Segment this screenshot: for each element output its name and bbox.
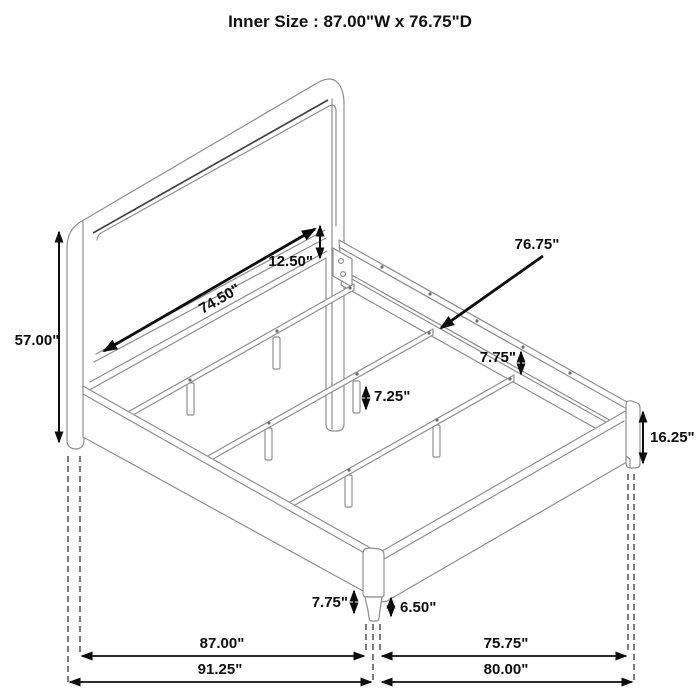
dim-label: 87.00" (200, 635, 245, 652)
side-rail-top-face-line (339, 247, 627, 409)
slat-screw-hole (347, 468, 350, 471)
front-structure (83, 386, 640, 621)
rail-screw-hole (521, 345, 524, 348)
center-support-leg (345, 475, 352, 507)
dim-label: 91.25" (198, 661, 243, 678)
dim-footboard-height: 16.25" (643, 412, 695, 463)
slat-screw-hole (188, 378, 191, 381)
slat-screw-hole (348, 286, 351, 289)
dim-inner-width-bottom: 87.00" (82, 635, 364, 656)
dim-center-leg-height: 7.25" (366, 387, 410, 409)
dim-label: 12.50" (268, 253, 313, 270)
dim-label: 7.75" (312, 594, 348, 611)
slat-screw-hole (355, 372, 358, 375)
dimension-diagram: 74.50" 12.50" 57.00" 76.75" 7.75" 7.25" … (0, 0, 700, 700)
dim-label: 75.75" (484, 635, 529, 652)
dim-headboard-height: 57.00" (15, 232, 60, 442)
dim-label: 76.75" (515, 236, 560, 253)
dim-label: 57.00" (15, 332, 60, 349)
rail-screw-hole (568, 371, 571, 374)
dim-rail-floor-clearance: 7.75" (312, 591, 354, 613)
dim-inner-depth-bottom: 75.75" (382, 635, 626, 656)
rail-screw-hole (428, 292, 431, 295)
center-support-leg (273, 337, 280, 369)
rail-screw-hole (380, 265, 383, 268)
right-side-rail (333, 240, 629, 446)
dim-overall-width-bottom: 91.25" (70, 661, 371, 682)
slat-screw-hole (427, 331, 430, 334)
footboard-rail-body (377, 411, 632, 602)
slat-screw-hole (508, 377, 511, 380)
rail-screw-hole (475, 319, 478, 322)
slat-screw-hole (267, 421, 270, 424)
dim-label: 6.50" (400, 599, 436, 616)
slat-screw-hole (275, 329, 278, 332)
front-corner-leg (365, 597, 382, 621)
center-support-leg (187, 383, 194, 415)
bed-frame-drawing: 74.50" 12.50" 57.00" 76.75" 7.75" 7.25" … (0, 0, 700, 700)
dim-side-rail-inner-depth: 76.75" (441, 236, 559, 328)
dim-label: 7.75" (480, 349, 516, 366)
center-support-leg (265, 428, 272, 460)
left-side-rail-top-face-line (83, 394, 368, 555)
center-support-leg (433, 425, 440, 457)
dim-footboard-floor-clearance: 6.50" (391, 598, 436, 616)
dim-arrow-leader (441, 256, 543, 328)
footboard-rail-top-face-line (379, 421, 624, 562)
drawing-title: Inner Size : 87.00"W x 76.75"D (228, 12, 472, 31)
dim-overall-depth-bottom: 80.00" (382, 661, 632, 682)
slat-screw-hole (435, 418, 438, 421)
dim-label: 80.00" (484, 661, 529, 678)
dim-label: 7.25" (374, 388, 410, 405)
front-corner-cap (363, 548, 384, 597)
center-support-leg (353, 381, 360, 413)
dim-label: 16.25" (650, 429, 695, 446)
